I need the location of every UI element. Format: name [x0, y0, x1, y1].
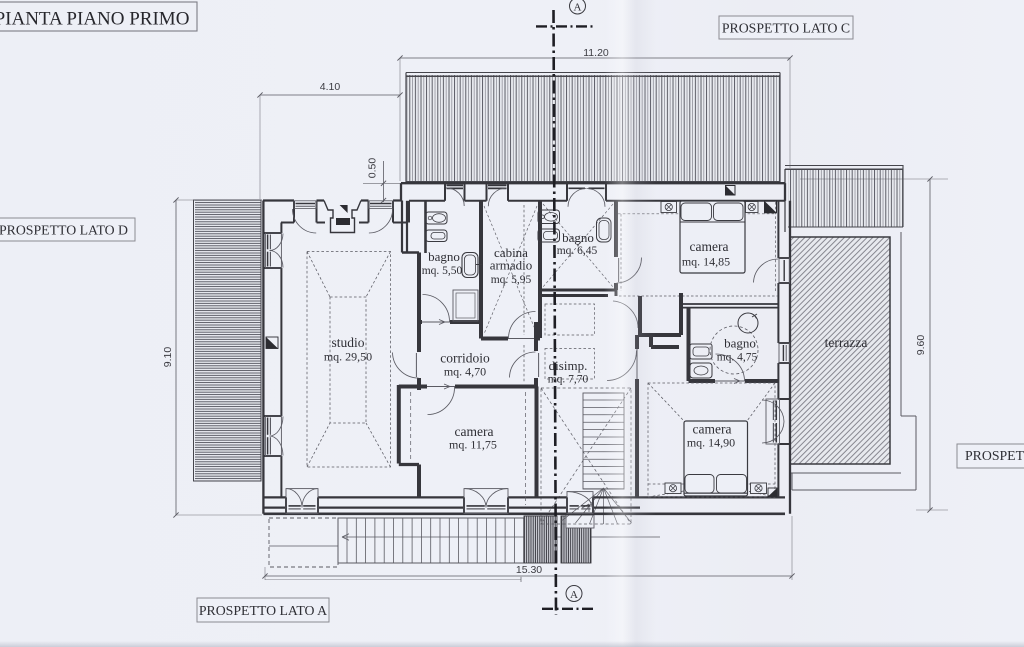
svg-text:bagno: bagno	[562, 230, 594, 245]
svg-text:PROSPETTO LATO C: PROSPETTO LATO C	[722, 20, 850, 35]
svg-text:11.20: 11.20	[583, 47, 609, 59]
svg-text:camera: camera	[690, 239, 729, 254]
svg-text:corridoio: corridoio	[440, 351, 490, 366]
svg-text:mq. 4,75: mq. 4,75	[717, 352, 758, 364]
svg-text:mq. 14,90: mq. 14,90	[687, 436, 735, 450]
svg-text:mq. 6,45: mq. 6,45	[557, 245, 598, 257]
svg-text:PROSPETTO LATO B: PROSPETTO LATO B	[965, 448, 1024, 463]
svg-text:studio: studio	[331, 335, 364, 350]
svg-text:bagno: bagno	[428, 249, 460, 264]
svg-text:armadio: armadio	[490, 258, 533, 273]
svg-text:mq. 5,95: mq. 5,95	[491, 274, 532, 286]
svg-text:mq. 7,70: mq. 7,70	[548, 374, 589, 386]
svg-text:mq. 5,50: mq. 5,50	[422, 265, 463, 277]
svg-text:terrazza: terrazza	[825, 335, 868, 350]
svg-text:9.60: 9.60	[915, 335, 927, 356]
svg-text:mq. 11,75: mq. 11,75	[449, 438, 497, 452]
svg-text:mq. 29,50: mq. 29,50	[324, 350, 372, 364]
svg-text:mq. 4,70: mq. 4,70	[444, 365, 486, 379]
svg-text:9.10: 9.10	[162, 347, 174, 368]
svg-text:A: A	[574, 2, 582, 14]
svg-text:PIANTA PIANO PRIMO: PIANTA PIANO PRIMO	[0, 9, 189, 30]
svg-text:0.50: 0.50	[367, 158, 379, 179]
svg-text:camera: camera	[693, 422, 732, 437]
svg-text:15.30: 15.30	[516, 564, 542, 576]
svg-text:mq. 14,85: mq. 14,85	[682, 255, 730, 269]
svg-text:disimp.: disimp.	[549, 358, 588, 373]
svg-text:PROSPETTO LATO D: PROSPETTO LATO D	[0, 222, 128, 237]
svg-text:PROSPETTO LATO A: PROSPETTO LATO A	[199, 603, 327, 618]
svg-text:bagno: bagno	[724, 336, 756, 351]
svg-text:4.10: 4.10	[320, 81, 341, 93]
svg-text:A: A	[570, 589, 578, 601]
